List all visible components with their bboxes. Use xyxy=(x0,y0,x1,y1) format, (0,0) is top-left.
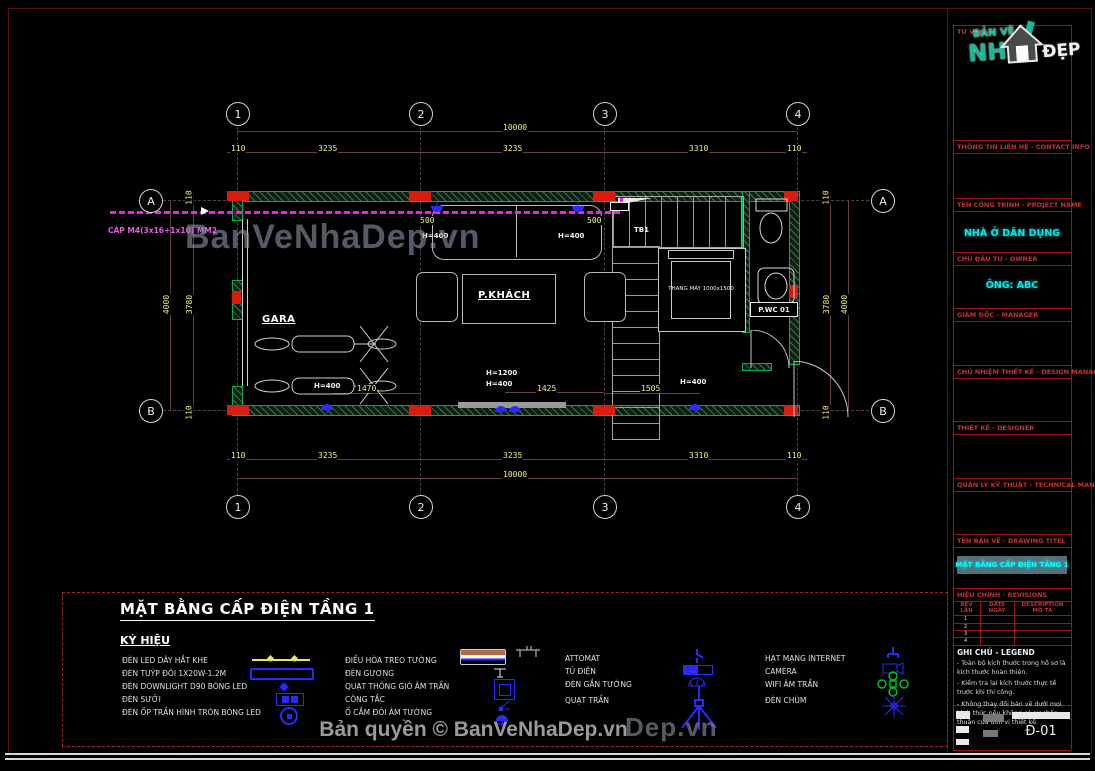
legend-item: ĐÈN ỐP TRẦN HÌNH TRÒN BÓNG LED xyxy=(122,708,261,717)
column-3-bottom xyxy=(593,405,615,415)
sidebar-divider xyxy=(953,434,1071,435)
grid-bubble-1-bottom: 1 xyxy=(226,495,250,519)
sidebar-divider xyxy=(953,153,1071,154)
legend-item: WIFI ÂM TRẦN xyxy=(765,680,818,689)
h400-label: H=400 xyxy=(314,382,340,390)
legend-symbol-ac-bracket-icon xyxy=(514,644,544,660)
revision-row-number: 2 xyxy=(964,624,967,630)
revision-row-number: 4 xyxy=(964,638,967,644)
sidebar-divider xyxy=(953,198,1071,199)
elevator-door xyxy=(668,250,734,259)
legend-symbol-mirror-light-icon xyxy=(492,666,508,678)
sidebar-divider xyxy=(953,534,1071,535)
grid-bubble-4-bottom: 4 xyxy=(786,495,810,519)
note-item: - Kiểm tra lại kích thước thực tế trước … xyxy=(957,679,1067,697)
dim-left-seg-0: 110 xyxy=(185,189,194,205)
grid-bubble-1-top: 1 xyxy=(226,102,250,126)
sidebar-divider xyxy=(953,588,1071,589)
column-2-bottom xyxy=(409,405,431,415)
drawing-sheet: 1 2 3 4 1 2 3 4 A B A B 10000 110 3235 3… xyxy=(0,0,1095,771)
legend-item: TỦ ĐIỆN xyxy=(565,667,596,676)
stamp-box xyxy=(956,739,969,745)
dim-right-seg-1: 3780 xyxy=(822,294,831,315)
dim-top-seg-2: 3235 xyxy=(502,144,523,153)
legend-item: ĐIỀU HÒA TREO TƯỜNG xyxy=(345,656,437,665)
legend-item: QUẠT THÔNG GIÓ ÂM TRẦN xyxy=(345,682,449,691)
grid-bubble-3-bottom: 3 xyxy=(593,495,617,519)
column-left-mid xyxy=(232,291,241,304)
legend-item: ĐÈN CHÙM xyxy=(765,696,806,705)
copyright: Bản quyền © BanVeNhaDep.vn xyxy=(0,718,947,742)
grid-bubble-B-right: B xyxy=(871,399,895,423)
sidebar-divider xyxy=(953,491,1071,492)
sheet-bottom-line-1 xyxy=(5,753,1090,755)
grid-bubble-A-right: A xyxy=(871,189,895,213)
socket-icon xyxy=(571,202,585,215)
legend-item: ĐÈN LED DÂY HẮT KHE xyxy=(122,656,208,665)
dim-top-seg-0: 110 xyxy=(230,144,246,153)
legend-symbol-heater-lamp-icon xyxy=(276,693,304,706)
drawing-number: Đ-01 xyxy=(1012,724,1070,739)
stamp-box xyxy=(956,711,970,719)
dim-bottom-seg-4: 110 xyxy=(786,451,802,460)
legend-symbol-vent-fan-icon xyxy=(494,679,515,700)
motorbike-icon xyxy=(248,322,408,366)
grid-bubble-2-top: 2 xyxy=(409,102,433,126)
dim-top-total: 10000 xyxy=(502,123,528,132)
legend-item: ĐÈN SƯỞI xyxy=(122,695,161,704)
drawing-title-value: MẶT BẰNG CẤP ĐIỆN TẦNG 1 xyxy=(955,561,1068,569)
dim-left-total: 4000 xyxy=(162,294,171,315)
dim-1425: 1425 xyxy=(536,384,557,393)
sidebar-divider xyxy=(953,140,1071,141)
entry-door-arc xyxy=(793,361,849,419)
legend-subtitle: KÝ HIỆU xyxy=(120,634,170,647)
brand-logo: BẢN VẼ NH ĐẸP xyxy=(960,14,1074,84)
sidebar-divider xyxy=(953,421,1071,422)
dim-1505: 1505 xyxy=(640,384,661,393)
grid-bubble-B-left: B xyxy=(139,399,163,423)
cable-arrow-icon xyxy=(201,207,209,215)
legend-item: ĐÈN GẮN TƯỜNG xyxy=(565,680,632,689)
date-col-header: DATENGÀY xyxy=(980,602,1014,614)
legend-item: ĐÈN DOWNLIGHT D90 BÓNG LED xyxy=(122,682,247,691)
grid-bubble-3-top: 3 xyxy=(593,102,617,126)
legend-item: CÔNG TẮC xyxy=(345,695,385,704)
h400-label: H=400 xyxy=(558,232,584,240)
section-owner-header: CHỦ ĐẦU TƯ - OWNER xyxy=(957,255,1069,263)
legend-item: HẠT MẠNG INTERNET xyxy=(765,654,845,663)
section-design-manager-header: CHỦ NHIỆM THIẾT KẾ - DESIGN MANAGER xyxy=(957,368,1069,376)
sidebar-divider xyxy=(953,211,1071,212)
power-cable-line xyxy=(110,211,622,214)
tb1-panel xyxy=(610,202,629,211)
house-logo-icon xyxy=(998,18,1045,67)
wc-label: P.WC 01 xyxy=(758,306,790,314)
notes-header: GHI CHÚ - LEGEND xyxy=(957,648,1035,657)
socket-icon xyxy=(508,403,522,416)
legend-item: Ổ CẮM ĐÔI ÂM TƯỜNG xyxy=(345,708,432,717)
grid-bubble-2-bottom: 2 xyxy=(409,495,433,519)
sink-icon xyxy=(756,266,796,306)
dim-bottom-seg-3: 3310 xyxy=(688,451,709,460)
grid-bubble-A-left: A xyxy=(139,189,163,213)
sidebar-divider xyxy=(953,308,1071,309)
dim-500-right: 500 xyxy=(586,216,602,225)
legend-title: MẶT BẰNG CẤP ĐIỆN TẦNG 1 xyxy=(120,600,375,621)
owner-value: ÔNG: ABC xyxy=(953,280,1071,291)
note-item: - Toàn bộ kích thước trong hồ sơ là kích… xyxy=(957,659,1067,677)
stamp-box-gray xyxy=(983,714,1004,722)
sidebar-divider xyxy=(953,378,1071,379)
sidebar-divider xyxy=(953,478,1071,479)
tb1-label: TB1 xyxy=(634,226,649,234)
column-2-top xyxy=(409,191,431,201)
wc-label-box: P.WC 01 xyxy=(750,302,798,317)
sheet-bottom-line-2 xyxy=(5,758,1090,760)
room-label-living: P.KHÁCH xyxy=(478,290,530,301)
dim-left-seg-2: 110 xyxy=(185,404,194,420)
legend-item: ĐÈN TUÝP ĐÔI 1X20W-1.2M xyxy=(122,669,226,678)
sidebar-divider xyxy=(953,365,1071,366)
section-drawing-title-header: TÊN BẢN VẼ - DRAWING TITEL xyxy=(957,537,1069,545)
sidebar-right-border xyxy=(1071,25,1072,750)
socket-icon xyxy=(430,202,444,215)
rev-col-header: REVLẦN xyxy=(953,602,980,614)
dim-bottom-total: 10000 xyxy=(502,470,528,479)
revision-table: REVLẦN DATENGÀY DESCRIPTIONMÔ TẢ 1 2 3 4 xyxy=(953,601,1071,645)
revisions-header: HIỆU CHỈNH - REVISIONS xyxy=(957,591,1069,599)
sidebar-divider xyxy=(953,265,1071,266)
legend-symbol-breaker-icon xyxy=(692,648,706,664)
h400-label: H=400 xyxy=(680,378,706,386)
column-1-top xyxy=(227,191,249,201)
elevator-label: THANG MÁY 1000x1500 xyxy=(660,286,742,292)
stamp-bar xyxy=(1012,712,1070,719)
legend-symbol-ac-wall-icon xyxy=(460,649,506,665)
legend-item: ATTOMAT xyxy=(565,654,600,663)
dim-bottom-seg-2: 3235 xyxy=(502,451,523,460)
armchair-left xyxy=(416,272,458,322)
socket-icon xyxy=(320,401,334,414)
dim-bottom-seg-0: 110 xyxy=(230,451,246,460)
legend-symbol-chandelier-icon xyxy=(880,692,908,720)
dim-right-seg-0: 110 xyxy=(822,189,831,205)
legend-symbol-switch-icon xyxy=(496,699,512,713)
column-3-top xyxy=(593,191,615,201)
sidebar-divider xyxy=(953,750,1071,751)
section-manager-header: GIÁM ĐỐC - MANAGER xyxy=(957,311,1069,319)
section-contact-header: THÔNG TIN LIÊN HỆ - CONTACT INFO xyxy=(957,143,1069,151)
dim-left-seg-1: 3780 xyxy=(185,294,194,315)
sidebar-divider xyxy=(953,252,1071,253)
stamp-box xyxy=(956,726,969,733)
legend-symbol-tube-light-icon xyxy=(250,668,314,680)
dim-top-seg-4: 110 xyxy=(786,144,802,153)
wc-door-arc xyxy=(750,330,790,370)
watermark-text: BanVeNhaDep.vn xyxy=(185,218,481,257)
legend-item: QUẠT TRẦN xyxy=(565,696,609,705)
legend-item: ĐÈN GƯƠNG xyxy=(345,669,394,678)
h400-label: H=400 xyxy=(486,380,512,388)
toilet-icon xyxy=(754,198,792,246)
socket-icon xyxy=(494,403,508,416)
dim-top-seg-1: 3235 xyxy=(317,144,338,153)
section-designer-header: THIẾT KẾ - DESIGNER xyxy=(957,424,1069,432)
section-project-header: TÊN CÔNG TRÌNH - PROJECT NAME xyxy=(957,201,1069,209)
dim-bottom-seg-1: 3235 xyxy=(317,451,338,460)
sidebar-divider xyxy=(953,547,1071,548)
dim-top-seg-3: 3310 xyxy=(688,144,709,153)
description-col-header: DESCRIPTIONMÔ TẢ xyxy=(1014,602,1071,614)
drawing-title-highlight: MẶT BẰNG CẤP ĐIỆN TẦNG 1 xyxy=(957,556,1067,574)
sidebar-divider xyxy=(953,321,1071,322)
dim-right-total: 4000 xyxy=(840,294,849,315)
section-technical-manager-header: QUẢN LÝ KỸ THUẬT - TECHNICAL MANAGER xyxy=(957,481,1069,489)
project-name-value: NHÀ Ở DÂN DỤNG xyxy=(953,228,1071,239)
stamp-box-gray xyxy=(983,730,998,737)
grid-bubble-4-top: 4 xyxy=(786,102,810,126)
legend-item: CAMERA xyxy=(765,667,797,676)
socket-icon xyxy=(688,401,702,414)
legend-symbol-led-strip-icon xyxy=(252,659,310,661)
armchair-right xyxy=(584,272,626,322)
h1200-label: H=1200 xyxy=(486,369,517,377)
revision-row-number: 3 xyxy=(964,631,967,637)
logo-dep-text: ĐẸP xyxy=(1042,40,1082,63)
column-1-bottom xyxy=(227,405,249,415)
revision-row-number: 1 xyxy=(964,616,967,622)
dim-1470: 1470 xyxy=(356,384,377,393)
